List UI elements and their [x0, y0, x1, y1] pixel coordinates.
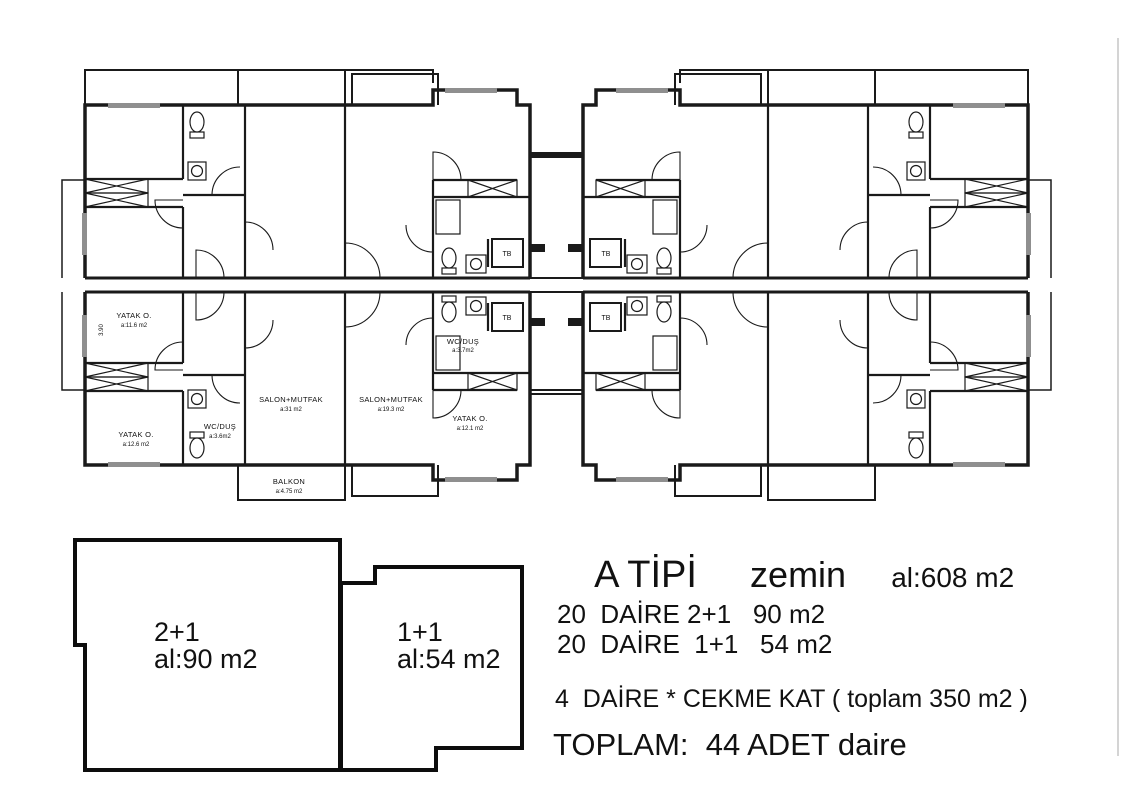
- unit-2plus1-type: 2+1: [154, 617, 200, 647]
- unit-1plus1-area: al:54 m2: [397, 644, 501, 674]
- quadrant-right-bottom: [568, 292, 1051, 500]
- tub-label: TB: [602, 315, 611, 322]
- room-label: SALON+MUTFAK: [259, 395, 323, 404]
- key-unit-labels: 2+1 al:90 m2 1+1 al:54 m2: [154, 617, 501, 674]
- central-top-bridge: [530, 152, 583, 158]
- summary-line-total: TOPLAM: 44 ADET daire: [553, 727, 907, 762]
- room-area: a:12.6 m2: [123, 442, 150, 448]
- room-area: a:12.1 m2: [457, 426, 484, 432]
- site-plan-drawing: YATAK O. a:11.6 m2 YATAK O. a:12.6 m2 WC…: [0, 0, 1133, 800]
- room-label: SALON+MUTFAK: [359, 395, 423, 404]
- quadrant-right-top: [568, 70, 1051, 278]
- room-area: a:3.7m2: [452, 348, 474, 354]
- type-title: A TİPİ: [594, 553, 697, 596]
- summary-line-cekme-kat: 4 DAİRE * CEKME KAT ( toplam 350 m2 ): [555, 684, 1028, 713]
- room-label: YATAK O.: [452, 414, 487, 423]
- room-label: WC/DUŞ: [204, 422, 236, 431]
- dimension-label: 3.90: [99, 324, 105, 336]
- top-terrace-band: [85, 70, 1028, 105]
- unit-1plus1-type: 1+1: [397, 617, 443, 647]
- central-corridor-walls: [530, 278, 583, 394]
- room-area: a:11.6 m2: [121, 323, 148, 329]
- tub-label: TB: [503, 251, 512, 258]
- room-area: a:31 m2: [280, 407, 302, 413]
- summary-block: A TİPİ zemin al:608 m2 20 DAİRE 2+1 90 m…: [553, 553, 1036, 762]
- room-labels: YATAK O. a:11.6 m2 YATAK O. a:12.6 m2 WC…: [99, 251, 611, 495]
- room-area: a:19.3 m2: [378, 407, 405, 413]
- room-area: a:3.6m2: [209, 434, 231, 440]
- floor-name: zemin: [750, 554, 846, 595]
- room-area: a:4.75 m2: [276, 489, 303, 495]
- room-label: WC/DUŞ: [447, 337, 479, 346]
- floor-area: al:608 m2: [891, 562, 1014, 593]
- summary-title-line: A TİPİ zemin al:608 m2: [563, 553, 1036, 596]
- summary-line-2plus1: 20 DAİRE 2+1 90 m2: [557, 599, 825, 629]
- tub-label: TB: [503, 315, 512, 322]
- summary-line-1plus1: 20 DAİRE 1+1 54 m2: [557, 629, 832, 659]
- room-label: YATAK O.: [118, 430, 153, 439]
- tub-label: TB: [602, 251, 611, 258]
- room-label: BALKON: [273, 477, 305, 486]
- room-label: YATAK O.: [116, 311, 151, 320]
- unit-2plus1-area: al:90 m2: [154, 644, 258, 674]
- quadrant-left-top: [62, 70, 545, 278]
